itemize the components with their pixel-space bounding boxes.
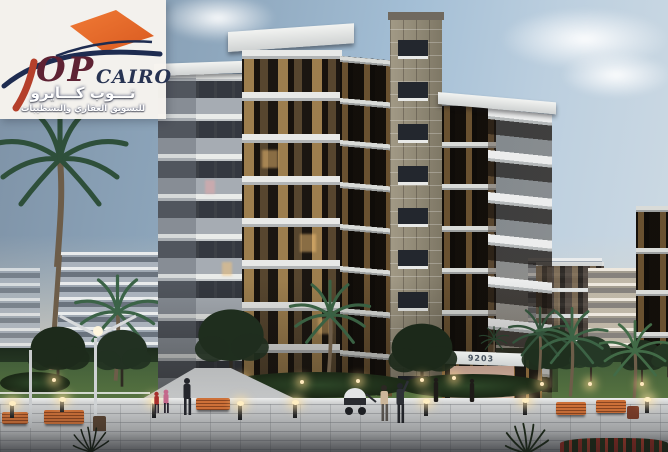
lawn-rail (0, 392, 150, 394)
logo-arabic-tagline: للتسويق العقاري والتشطيبات (6, 104, 160, 114)
architectural-rendering: 9203 (0, 0, 668, 452)
garden-uplight (52, 378, 56, 382)
couple-with-stroller (338, 380, 422, 428)
garden-uplight (640, 382, 644, 386)
foreground-plant (68, 416, 114, 452)
cloud (560, 52, 668, 98)
lit-window (262, 150, 278, 168)
street-lamp-pole (94, 338, 97, 426)
family-walking (150, 376, 210, 422)
light-pole (29, 350, 32, 428)
lit-window (222, 262, 232, 276)
bench (596, 400, 626, 413)
street-lamp-head (58, 310, 138, 346)
bollard-light (10, 404, 14, 418)
palm-tree (595, 315, 668, 410)
logo-arabic-name: تـــوب كـــايرو (6, 84, 160, 102)
bollard-light (293, 403, 297, 418)
garden-uplight (540, 382, 544, 386)
lit-window (205, 180, 215, 194)
brand-logo: OP CAIRO تـــوب كـــايرو للتسويق العقاري… (0, 0, 166, 119)
garden-uplight (300, 380, 304, 384)
shrub-bed (0, 372, 70, 394)
bollard-light (645, 400, 649, 413)
bollard-light (60, 400, 64, 412)
building-number: 9203 (468, 354, 494, 364)
flower-bed (560, 438, 668, 452)
garden-uplight (588, 382, 592, 386)
lit-window (300, 234, 316, 252)
bench (2, 412, 28, 424)
planter-pot (627, 406, 639, 419)
people-near-entrance (428, 377, 480, 405)
bench (556, 402, 586, 415)
cycad-plant (495, 410, 559, 452)
bollard-light (238, 404, 242, 420)
stone-core-cap (388, 12, 444, 20)
